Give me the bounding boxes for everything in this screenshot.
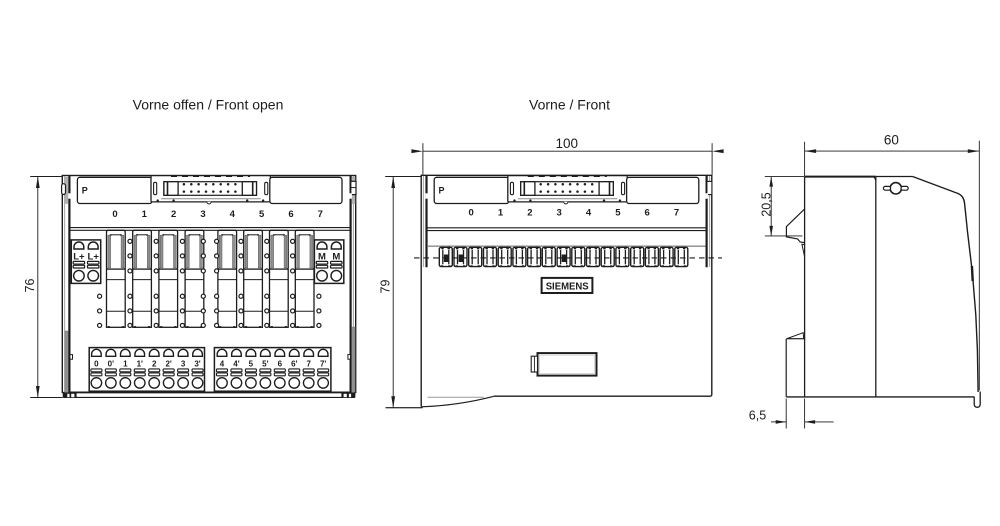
svg-text:L+: L+ — [73, 251, 85, 262]
svg-text:7: 7 — [318, 209, 323, 220]
svg-text:3: 3 — [200, 209, 205, 220]
svg-text:P: P — [439, 185, 445, 195]
svg-text:4': 4' — [233, 360, 239, 369]
svg-text:79: 79 — [379, 280, 393, 294]
svg-text:0: 0 — [94, 360, 99, 369]
svg-text:1: 1 — [142, 209, 148, 220]
svg-text:0: 0 — [469, 208, 474, 219]
svg-text:4: 4 — [230, 209, 236, 220]
svg-text:2': 2' — [165, 360, 171, 369]
svg-text:L+: L+ — [88, 251, 100, 262]
svg-text:5': 5' — [262, 360, 268, 369]
svg-text:Vorne / Front: Vorne / Front — [529, 96, 610, 112]
svg-text:6: 6 — [645, 208, 650, 219]
svg-text:76: 76 — [23, 279, 37, 293]
svg-text:6': 6' — [291, 360, 297, 369]
svg-text:4: 4 — [220, 360, 225, 369]
svg-text:6: 6 — [288, 209, 293, 220]
svg-text:0: 0 — [112, 209, 117, 220]
svg-text:2: 2 — [527, 208, 532, 219]
svg-text:1': 1' — [137, 360, 143, 369]
svg-text:2: 2 — [152, 360, 157, 369]
svg-text:1: 1 — [123, 360, 128, 369]
svg-text:5: 5 — [615, 208, 621, 219]
svg-text:SIEMENS: SIEMENS — [546, 282, 589, 293]
svg-text:20,5: 20,5 — [760, 192, 774, 216]
svg-text:Vorne offen / Front open: Vorne offen / Front open — [133, 96, 284, 112]
svg-text:3': 3' — [194, 360, 200, 369]
svg-text:60: 60 — [884, 133, 899, 148]
svg-text:P: P — [82, 185, 88, 195]
svg-text:M: M — [332, 251, 340, 262]
svg-text:7: 7 — [306, 360, 311, 369]
svg-text:7: 7 — [674, 208, 679, 219]
svg-text:3: 3 — [181, 360, 186, 369]
svg-text:2: 2 — [171, 209, 176, 220]
svg-text:4: 4 — [586, 208, 592, 219]
svg-text:5: 5 — [259, 209, 265, 220]
svg-text:6,5: 6,5 — [749, 409, 766, 423]
svg-text:1: 1 — [498, 208, 504, 219]
svg-text:100: 100 — [556, 136, 579, 151]
svg-text:M: M — [318, 251, 326, 262]
svg-text:6: 6 — [278, 360, 283, 369]
svg-text:3: 3 — [557, 208, 562, 219]
svg-text:0': 0' — [108, 360, 114, 369]
svg-text:5: 5 — [249, 360, 254, 369]
svg-text:7': 7' — [320, 360, 326, 369]
